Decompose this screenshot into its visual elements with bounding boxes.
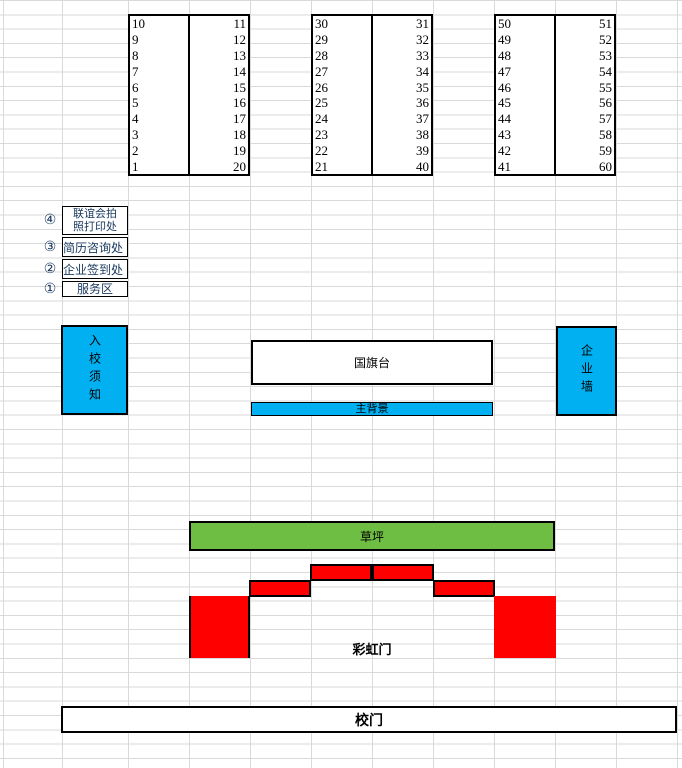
booth-number: 24 — [313, 111, 371, 127]
flag-stage[interactable]: 国旗台 — [251, 340, 493, 385]
flag-stage-label: 国旗台 — [354, 354, 390, 371]
booth-number: 14 — [190, 63, 248, 79]
booth-number: 35 — [373, 79, 431, 95]
booth-number: 23 — [313, 127, 371, 143]
booth-number: 1 — [130, 158, 188, 174]
booth-number: 19 — [190, 142, 248, 158]
booth-number: 54 — [556, 63, 614, 79]
booth-number: 11 — [190, 16, 248, 32]
booth-number: 40 — [373, 158, 431, 174]
main-backdrop-strip[interactable]: 主背景 — [251, 402, 493, 416]
entry-notice-label: 入校须知 — [89, 334, 101, 406]
company-wall-label: 企业墙 — [581, 344, 593, 398]
booth-number: 18 — [190, 127, 248, 143]
booth-number: 46 — [496, 79, 554, 95]
booth-number: 6 — [130, 79, 188, 95]
booth-number: 16 — [190, 95, 248, 111]
school-gate[interactable]: 校门 — [61, 706, 677, 733]
lawn-strip[interactable]: 草坪 — [189, 521, 555, 551]
service-box-resume-consult[interactable]: 简历咨询处 — [62, 237, 128, 257]
service-box-label-line1: 联谊会拍 — [63, 208, 127, 221]
booth-table-41-60[interactable]: 50494847464544434241 5152535455565758596… — [494, 14, 616, 176]
booth-number: 39 — [373, 142, 431, 158]
service-marker-3: ③ — [39, 237, 61, 257]
booth-number: 27 — [313, 63, 371, 79]
spreadsheet-canvas: 10987654321 11121314151617181920 3029282… — [0, 0, 682, 768]
booth-number: 48 — [496, 48, 554, 64]
service-marker-4: ④ — [39, 206, 61, 235]
booth-number: 13 — [190, 48, 248, 64]
booth-number: 38 — [373, 127, 431, 143]
booth-number: 10 — [130, 16, 188, 32]
booth-number: 28 — [313, 48, 371, 64]
rainbow-gate-left-step[interactable] — [249, 580, 311, 597]
booth-number: 58 — [556, 127, 614, 143]
booth-number: 3 — [130, 127, 188, 143]
booth-number: 57 — [556, 111, 614, 127]
booth-number: 4 — [130, 111, 188, 127]
booth-number: 50 — [496, 16, 554, 32]
booth-number: 7 — [130, 63, 188, 79]
service-box-company-checkin[interactable]: 企业签到处 — [62, 259, 128, 279]
booth-number: 15 — [190, 79, 248, 95]
service-marker-1: ① — [39, 281, 61, 297]
booth-number: 21 — [313, 158, 371, 174]
service-marker-2: ② — [39, 259, 61, 279]
booth-number: 45 — [496, 95, 554, 111]
company-wall[interactable]: 企业墙 — [556, 326, 617, 416]
booth-table-1-20[interactable]: 10987654321 11121314151617181920 — [128, 14, 250, 176]
service-box-service-area[interactable]: 服务区 — [62, 281, 128, 297]
booth-number: 49 — [496, 32, 554, 48]
service-box-label-line2: 照打印处 — [63, 221, 127, 234]
booth-number: 32 — [373, 32, 431, 48]
booth-number: 22 — [313, 142, 371, 158]
booth-number: 33 — [373, 48, 431, 64]
rainbow-gate-left-pillar[interactable] — [189, 596, 250, 658]
rainbow-gate-label: 彩虹门 — [250, 639, 494, 658]
rainbow-gate-top-right[interactable] — [372, 564, 434, 581]
grid-vertical-line — [677, 0, 678, 768]
booth-column-right: 51525354555657585960 — [554, 16, 614, 174]
booth-number: 52 — [556, 32, 614, 48]
rainbow-gate-top-left[interactable] — [310, 564, 372, 581]
booth-number: 30 — [313, 16, 371, 32]
booth-number: 43 — [496, 127, 554, 143]
school-gate-label: 校门 — [355, 710, 383, 730]
booth-number: 60 — [556, 158, 614, 174]
booth-number: 29 — [313, 32, 371, 48]
booth-number: 17 — [190, 111, 248, 127]
booth-number: 9 — [130, 32, 188, 48]
booth-number: 36 — [373, 95, 431, 111]
booth-number: 20 — [190, 158, 248, 174]
booth-column-left: 50494847464544434241 — [496, 16, 554, 174]
booth-number: 51 — [556, 16, 614, 32]
booth-number: 25 — [313, 95, 371, 111]
booth-number: 26 — [313, 79, 371, 95]
booth-number: 31 — [373, 16, 431, 32]
main-backdrop-label: 主背景 — [356, 403, 389, 415]
booth-number: 37 — [373, 111, 431, 127]
booth-column-left: 30292827262524232221 — [313, 16, 371, 174]
booth-number: 44 — [496, 111, 554, 127]
booth-column-right: 11121314151617181920 — [188, 16, 248, 174]
booth-number: 47 — [496, 63, 554, 79]
booth-number: 2 — [130, 142, 188, 158]
service-box-photo-print[interactable]: 联谊会拍 照打印处 — [62, 206, 128, 235]
booth-column-right: 31323334353637383940 — [371, 16, 431, 174]
rainbow-gate-right-pillar[interactable] — [494, 596, 556, 658]
booth-number: 8 — [130, 48, 188, 64]
booth-number: 59 — [556, 142, 614, 158]
service-box-label: 简历咨询处 — [63, 239, 127, 256]
booth-table-21-40[interactable]: 30292827262524232221 3132333435363738394… — [311, 14, 433, 176]
booth-column-left: 10987654321 — [130, 16, 188, 174]
booth-number: 56 — [556, 95, 614, 111]
booth-number: 53 — [556, 48, 614, 64]
booth-number: 12 — [190, 32, 248, 48]
rainbow-gate-right-step[interactable] — [433, 580, 495, 597]
booth-number: 55 — [556, 79, 614, 95]
booth-number: 42 — [496, 142, 554, 158]
booth-number: 5 — [130, 95, 188, 111]
entry-notice-board[interactable]: 入校须知 — [61, 325, 128, 415]
service-box-label: 企业签到处 — [63, 261, 127, 278]
booth-number: 34 — [373, 63, 431, 79]
booth-number: 41 — [496, 158, 554, 174]
lawn-label: 草坪 — [360, 528, 384, 545]
service-box-label: 服务区 — [63, 282, 127, 296]
grid-vertical-line — [3, 0, 4, 768]
